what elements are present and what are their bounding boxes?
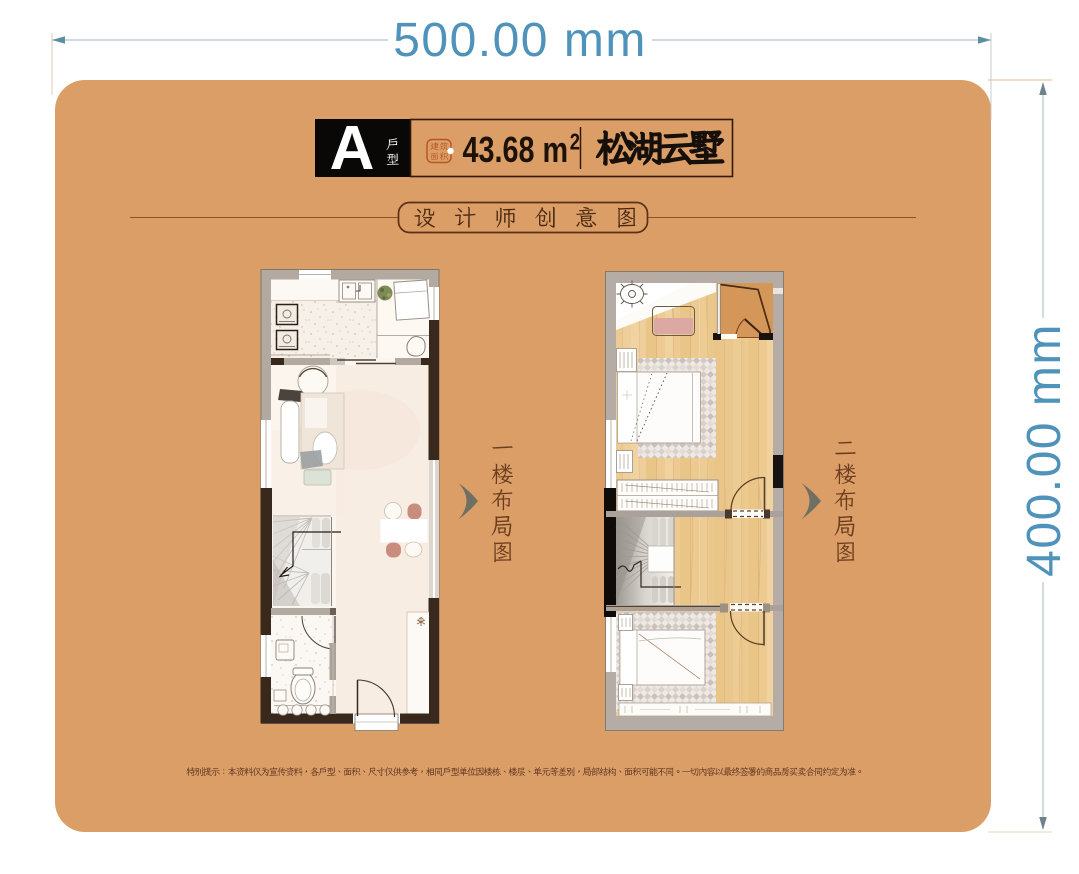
svg-text:A: A — [330, 114, 375, 183]
svg-text:2: 2 — [570, 130, 580, 155]
svg-text:43.68 m: 43.68 m — [463, 129, 569, 170]
svg-text:500.00 mm: 500.00 mm — [393, 14, 647, 67]
svg-text:400.00 mm: 400.00 mm — [1018, 323, 1071, 577]
